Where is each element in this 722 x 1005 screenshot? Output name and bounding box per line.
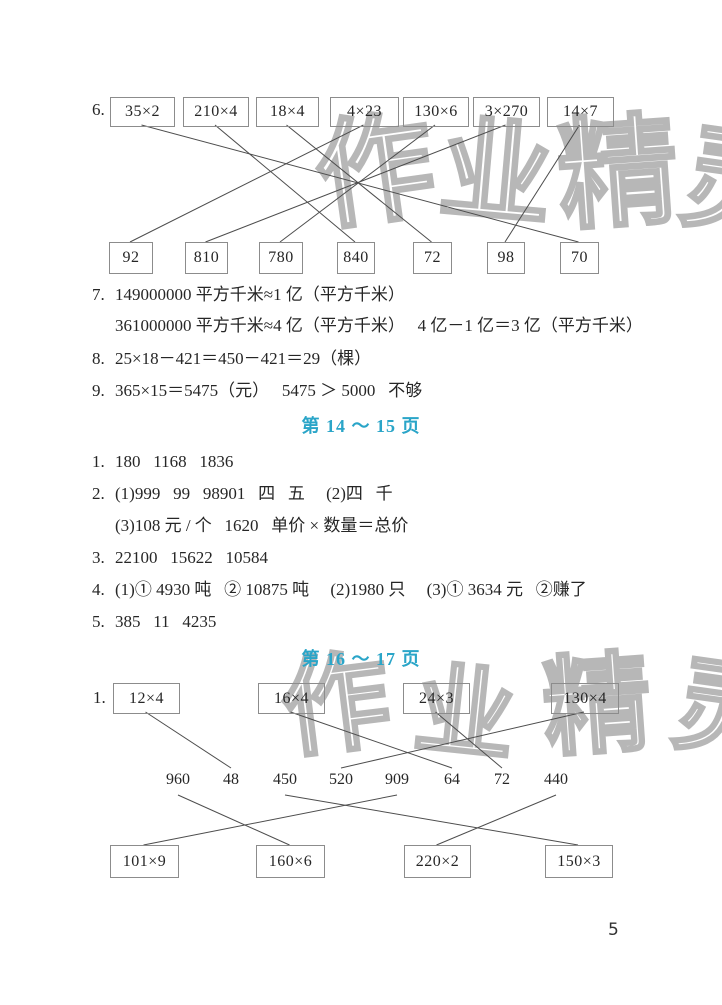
match-line [287, 125, 432, 242]
answer-box: 92 [109, 242, 153, 274]
s1-problem-2: 2.(1)999 99 98901 四 五 (2)四 千 [92, 484, 393, 504]
s2-problem-1-number: 1. [93, 688, 106, 708]
s1-problem-2-line-2: (3)108 元 / 个 1620 单价 × 数量＝总价 [115, 516, 408, 536]
s1-problem-1-number: 1. [92, 452, 115, 472]
answer-box: 70 [560, 242, 599, 274]
match-line [436, 712, 503, 768]
match-line [206, 125, 506, 242]
expression-box: 101×9 [110, 845, 179, 878]
middle-number: 72 [494, 771, 510, 789]
expression-box: 16×4 [258, 683, 325, 714]
s1-problem-3-number: 3. [92, 548, 115, 568]
middle-number: 450 [273, 771, 297, 789]
expression-box: 150×3 [545, 845, 613, 878]
match-line [291, 712, 453, 768]
match-line [437, 795, 557, 845]
s1-problem-2-number: 2. [92, 484, 115, 504]
problem-7-answer: 149000000 平方千米≈1 亿（平方千米） [115, 285, 405, 304]
match-line [130, 125, 364, 242]
section-header-p16-17: 第 16 ～ 17 页 [0, 645, 722, 671]
match-line [146, 712, 232, 768]
s1-problem-4: 4.(1)① 4930 吨 ② 10875 吨 (2)1980 只 (3)① 3… [92, 580, 587, 600]
middle-number: 520 [329, 771, 353, 789]
expression-box: 4×23 [330, 97, 399, 127]
s1-problem-3: 3.22100 15622 10584 [92, 548, 268, 568]
problem-9-answer: 365×15＝5475（元） 5475 ＞ 5000 不够 [115, 381, 422, 400]
s1-problem-3-answer: 22100 15622 10584 [115, 548, 268, 567]
s1-problem-4-number: 4. [92, 580, 115, 600]
expression-box: 160×6 [256, 845, 325, 878]
match-line [505, 125, 580, 242]
problem-9-line: 9.365×15＝5475（元） 5475 ＞ 5000 不够 [92, 381, 422, 401]
expression-box: 24×3 [403, 683, 470, 714]
middle-number: 440 [544, 771, 568, 789]
match-line [285, 795, 578, 845]
middle-number: 960 [166, 771, 190, 789]
middle-number: 909 [385, 771, 409, 789]
expression-box: 130×4 [551, 683, 619, 714]
s1-problem-1: 1.180 1168 1836 [92, 452, 233, 472]
section-header-p14-15: 第 14 ～ 15 页 [0, 412, 722, 438]
answer-box: 810 [185, 242, 228, 274]
expression-box: 12×4 [113, 683, 180, 714]
problem-9-number: 9. [92, 381, 115, 401]
problem-7-line-1: 7.149000000 平方千米≈1 亿（平方千米） [92, 285, 405, 305]
match-line [142, 125, 579, 242]
problem-7-line-2: 361000000 平方千米≈4 亿（平方千米） 4 亿－1 亿＝3 亿（平方千… [115, 316, 643, 336]
s1-problem-5-answer: 385 11 4235 [115, 612, 216, 631]
problem-8-number: 8. [92, 349, 115, 369]
expression-box: 220×2 [404, 845, 471, 878]
expression-box: 14×7 [547, 97, 614, 127]
match-line [280, 125, 435, 242]
problem-6-number: 6. [92, 100, 105, 120]
expression-box: 130×6 [403, 97, 469, 127]
answer-box: 780 [259, 242, 303, 274]
page-number: 5 [608, 920, 619, 940]
match-line [215, 125, 355, 242]
s1-problem-5: 5.385 11 4235 [92, 612, 216, 632]
problem-8-answer: 25×18－421＝450－421＝29（棵） [115, 349, 371, 368]
match-line [144, 795, 398, 845]
expression-box: 3×270 [473, 97, 540, 127]
s1-problem-5-number: 5. [92, 612, 115, 632]
s1-problem-4-answer: (1)① 4930 吨 ② 10875 吨 (2)1980 只 (3)① 363… [115, 580, 587, 599]
middle-number: 48 [223, 771, 239, 789]
answer-box: 98 [487, 242, 525, 274]
problem-8-line: 8.25×18－421＝450－421＝29（棵） [92, 349, 371, 369]
s1-problem-1-answer: 180 1168 1836 [115, 452, 233, 471]
s1-problem-2-answer-1: (1)999 99 98901 四 五 (2)四 千 [115, 484, 393, 503]
answer-box: 840 [337, 242, 375, 274]
expression-box: 35×2 [110, 97, 175, 127]
answer-box: 72 [413, 242, 452, 274]
expression-box: 18×4 [256, 97, 319, 127]
problem-7-number: 7. [92, 285, 115, 305]
middle-number: 64 [444, 771, 460, 789]
workbook-answers-page: 作业精灵作业精灵 6. 35×2210×418×44×23130×63×2701… [0, 0, 722, 1005]
expression-box: 210×4 [183, 97, 249, 127]
match-line [341, 712, 584, 768]
